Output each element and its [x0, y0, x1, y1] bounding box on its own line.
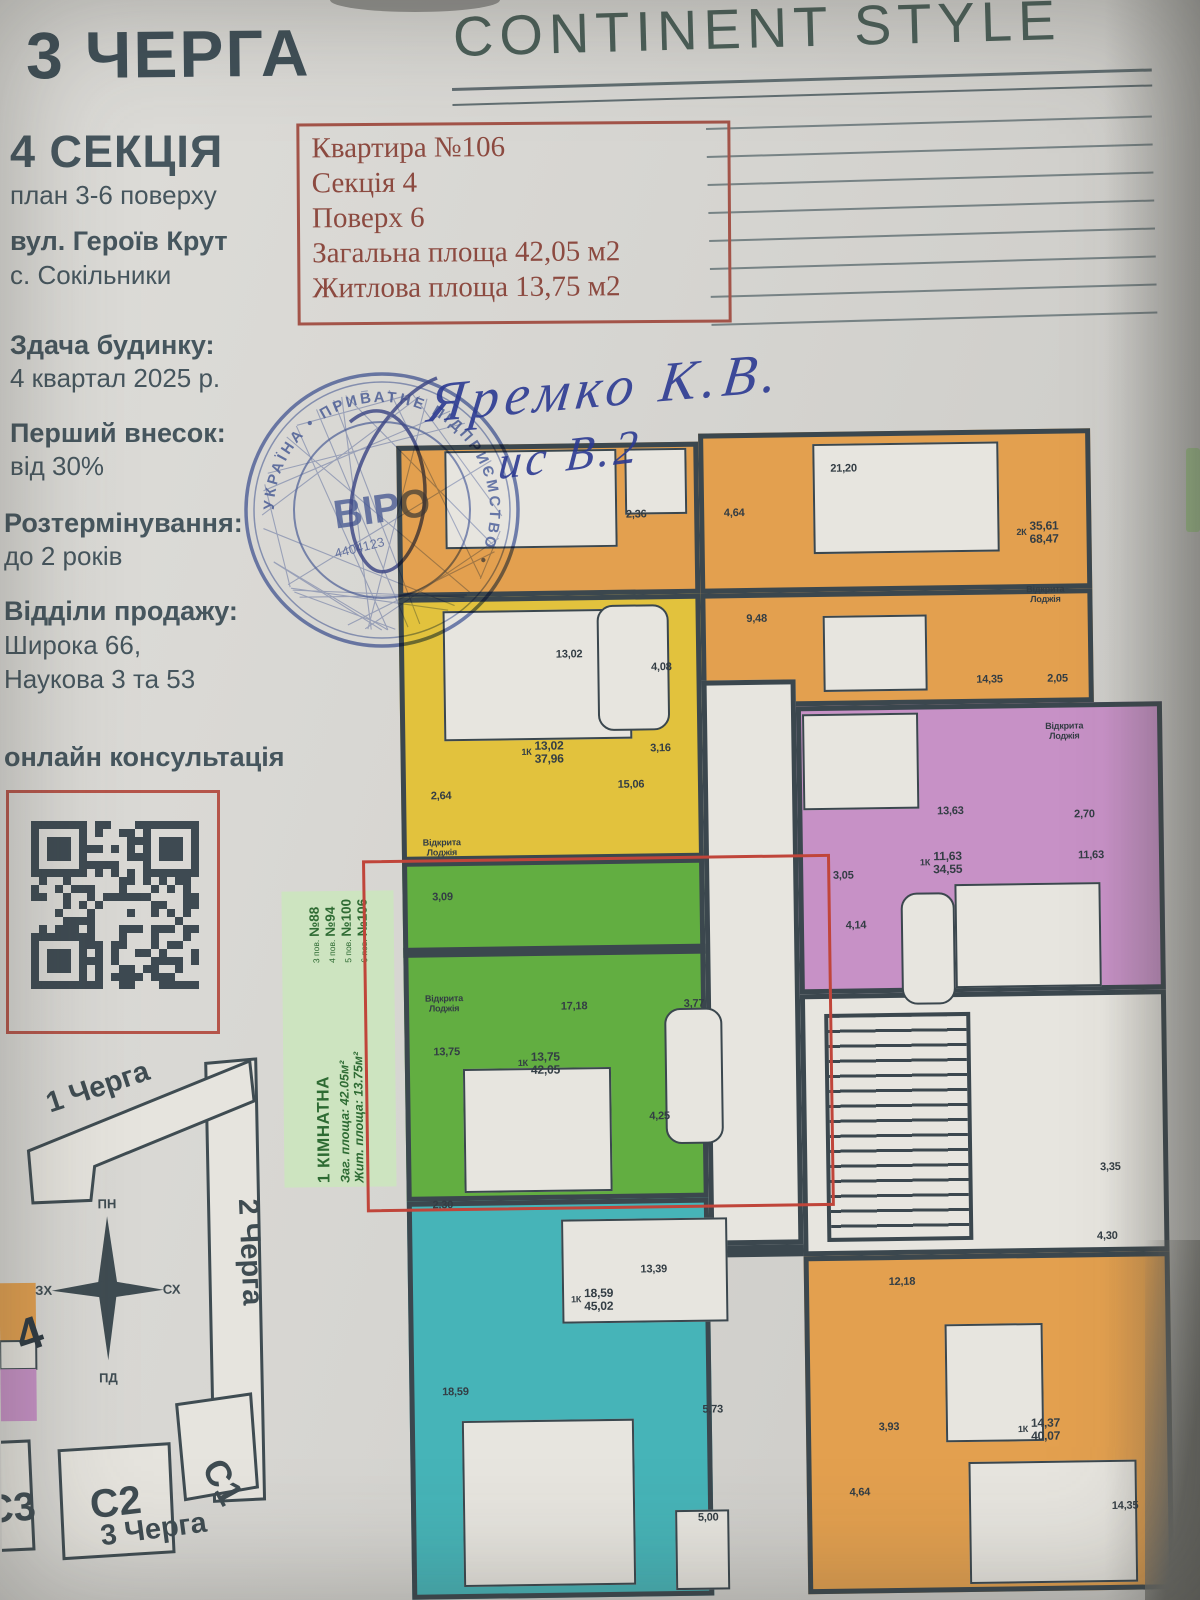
info-line: Квартира №106: [311, 129, 715, 167]
floor-row: 4 пов.№94: [322, 899, 338, 963]
handwriting-name: Яремко К.В.: [425, 340, 787, 436]
installment-title: Розтермінування:: [4, 508, 243, 539]
sales-address-1: Широка 66,: [4, 630, 141, 661]
room-area-label: 4,08: [651, 661, 672, 673]
room-area-label: 2,70: [1074, 808, 1095, 820]
info-line: Житлова площа 13,75 м2: [312, 269, 716, 307]
installment-text: до 2 років: [4, 541, 122, 572]
room-area-label: 2,05: [1047, 672, 1068, 684]
room-area-label: 1К18,5945,02: [571, 1287, 614, 1314]
room-area-label: 1К11,6334,55: [920, 850, 963, 877]
room-area-label: 15,06: [618, 778, 645, 790]
room-area-label: 18,59: [442, 1386, 469, 1398]
floor-row: 3 пов.№88: [306, 899, 322, 963]
compass-icon: [51, 1216, 164, 1361]
room-area-label: 4,14: [846, 919, 867, 931]
deposit-text: від 30%: [10, 451, 104, 482]
room-area-label: 4,64: [849, 1486, 870, 1498]
info-line: Поверх 6: [312, 199, 716, 237]
room-area-label: ВідкритаЛоджія: [1026, 585, 1064, 605]
site-map: 4 ПН ПД ЗХ СХ 1 Черга 2 Черга 3 Черга С1…: [0, 1049, 277, 1600]
address-street: вул. Героїв Крут: [10, 226, 228, 257]
handover-title: Здача будинку:: [10, 330, 214, 361]
site-phase2-label: 2 Черга: [232, 1198, 269, 1307]
deposit-title: Перший внесок:: [10, 418, 226, 449]
furniture: [823, 614, 928, 691]
furniture: [812, 441, 1000, 554]
room-area-label: 3,93: [879, 1421, 900, 1433]
room-area-label: 21,20: [830, 462, 857, 474]
brand-logo: CONTINENT STYLE: [452, 0, 1062, 69]
compass-south: ПД: [99, 1370, 118, 1385]
furniture: [968, 1460, 1138, 1584]
section-title: 4 СЕКЦІЯ: [10, 126, 223, 178]
site-section-purple: [0, 1369, 36, 1421]
room-area-label: 2К35,6168,47: [1016, 519, 1059, 546]
room-area-label: 13,02: [556, 648, 583, 660]
room-area-label: 4,64: [724, 507, 745, 519]
furniture: [802, 713, 919, 811]
room-area-label: 2,64: [431, 790, 452, 802]
sales-address-2: Наукова 3 та 53: [4, 664, 195, 695]
furniture: [954, 882, 1101, 988]
room-area-label: 1К14,3740,07: [1018, 1417, 1061, 1444]
room-area-label: 3,35: [1100, 1161, 1121, 1173]
qr-code: [31, 821, 199, 989]
qr-label: онлайн консультація: [4, 742, 284, 773]
compass-west: ЗХ: [35, 1283, 52, 1298]
room-area-label: ВідкритаЛоджія: [423, 838, 461, 858]
sales-title: Відділи продажу:: [4, 596, 238, 627]
section-subtitle: план 3-6 поверху: [10, 180, 217, 211]
bathtub: [901, 892, 957, 1005]
room-area-label: 11,63: [1078, 849, 1104, 861]
room-area-label: 13,63: [937, 805, 964, 817]
room-area-label: 3,05: [833, 869, 854, 881]
room-area-label: 5,73: [702, 1403, 723, 1415]
offer-floors: 3 пов.№884 пов.№945 пов.№1006 пов.№106: [306, 895, 370, 964]
site-c3-label: С3: [0, 1484, 37, 1532]
compass-east: СХ: [163, 1282, 181, 1297]
address-town: с. Сокільники: [10, 260, 171, 291]
room-area-label: 2,36: [626, 508, 647, 520]
floor-row: 5 пов.№100: [338, 899, 354, 963]
room-area-label: 13,39: [640, 1263, 667, 1275]
furniture: [462, 1419, 636, 1587]
info-line: Загальна площа 42,05 м2: [312, 234, 716, 272]
selected-apartment-highlight: [362, 854, 835, 1213]
room-area-label: 14,35: [1112, 1500, 1139, 1512]
staircase: [824, 1012, 973, 1242]
room-area-label: 12,18: [889, 1276, 916, 1288]
compass-north: ПН: [98, 1196, 117, 1211]
photo-edge-strip: [1186, 448, 1200, 532]
site-c2-label: С2: [88, 1478, 144, 1528]
room-area-label: 14,35: [976, 673, 1003, 685]
page-title: 3 ЧЕРГА: [26, 15, 311, 94]
handover-text: 4 квартал 2025 р.: [10, 363, 220, 394]
note-lines: [706, 116, 1158, 352]
room-area-label: 9,48: [746, 613, 767, 625]
room-area-label: 1К13,0237,96: [521, 739, 564, 766]
qr-frame: [6, 790, 220, 1034]
room-area-label: 4,30: [1097, 1230, 1118, 1242]
document-photo: 3 ЧЕРГА CONTINENT STYLE Квартира №106 Се…: [0, 0, 1200, 1600]
offer-title: 1 КІМНАТНА: [312, 973, 334, 1183]
info-line: Секція 4: [312, 164, 716, 202]
room-area-label: ВідкритаЛоджія: [1045, 721, 1083, 741]
room-area-label: 3,16: [650, 742, 671, 754]
photo-right-shadow: [1145, 1240, 1200, 1600]
apartment-info-box: Квартира №106 Секція 4 Поверх 6 Загальна…: [296, 120, 731, 325]
brand-underline: [452, 68, 1153, 119]
room-area-label: 5,00: [698, 1511, 719, 1523]
